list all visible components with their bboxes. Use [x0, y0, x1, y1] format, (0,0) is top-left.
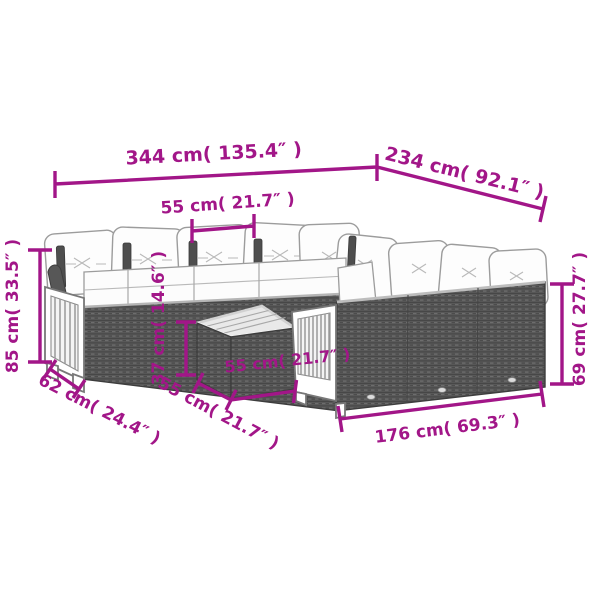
product-dimension-diagram: 344 cm( 135.4″ ) 234 cm( 92.1″ ) 55 cm( … [0, 0, 600, 600]
dim-total-height-label: 85 cm( 33.5″ ) [3, 239, 23, 373]
dim-back-height-label: 69 cm( 27.7″ ) [570, 252, 590, 386]
dim-seat-height-label: 37 cm( 14.6″ ) [149, 251, 169, 385]
